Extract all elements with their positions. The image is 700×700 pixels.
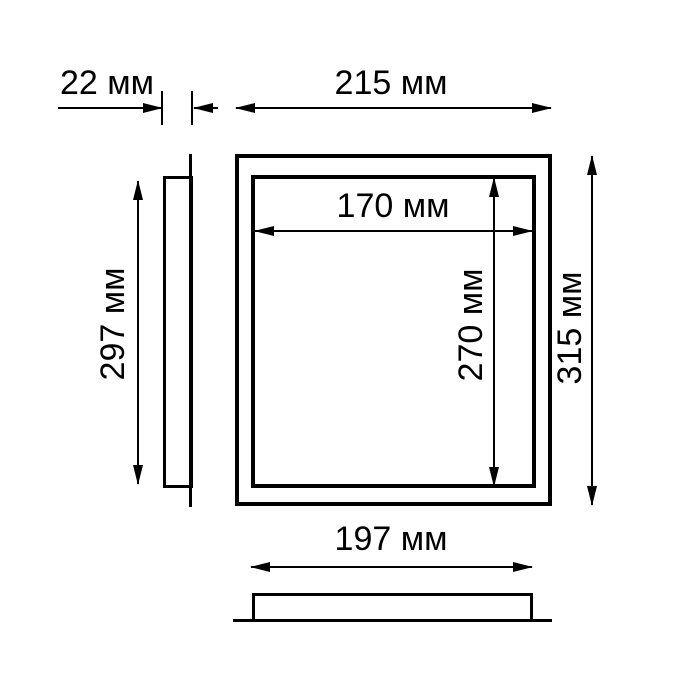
arrow-down-icon bbox=[133, 465, 143, 485]
arrow-left-icon bbox=[250, 562, 270, 572]
arrow-right-icon bbox=[532, 103, 552, 113]
arrow-up-icon bbox=[489, 177, 499, 197]
dimension-label-inner-height: 270 мм bbox=[454, 269, 488, 382]
dimension-depth-extension-line-left bbox=[161, 91, 163, 125]
dimension-inner-width-arrow bbox=[255, 230, 532, 232]
arrow-left-icon bbox=[254, 226, 274, 236]
dimension-outer-width-arrow bbox=[236, 107, 551, 109]
dimension-label-side-height: 297 мм bbox=[96, 268, 130, 381]
arrow-down-icon bbox=[489, 467, 499, 487]
dimension-body-width-arrow bbox=[251, 566, 532, 568]
technical-drawing: 297 мм 22 мм 215 мм 170 мм bbox=[0, 0, 700, 700]
dimension-outer-height-arrow bbox=[591, 156, 593, 505]
arrow-right-icon bbox=[143, 103, 163, 113]
dimension-side-height-arrow bbox=[137, 181, 139, 484]
dimension-label-depth: 22 мм bbox=[60, 66, 154, 100]
dimension-inner-height-arrow bbox=[493, 178, 495, 486]
arrow-left-icon bbox=[235, 103, 255, 113]
arrow-right-icon bbox=[513, 226, 533, 236]
dimension-label-inner-width: 170 мм bbox=[337, 189, 450, 223]
arrow-down-icon bbox=[587, 486, 597, 506]
dimension-label-outer-height: 315 мм bbox=[553, 272, 587, 385]
side-view-body-outline bbox=[163, 176, 193, 488]
arrow-right-icon bbox=[513, 562, 533, 572]
bottom-view-flange-line bbox=[233, 619, 552, 622]
arrow-left-icon bbox=[193, 103, 213, 113]
dimension-depth-leader-left bbox=[58, 107, 162, 109]
dimension-label-outer-width: 215 мм bbox=[335, 66, 448, 100]
bottom-view-body-outline bbox=[252, 593, 533, 622]
dimension-depth-leader-right bbox=[194, 107, 218, 109]
arrow-up-icon bbox=[587, 155, 597, 175]
arrow-up-icon bbox=[133, 180, 143, 200]
dimension-label-body-width: 197 мм bbox=[335, 522, 448, 556]
